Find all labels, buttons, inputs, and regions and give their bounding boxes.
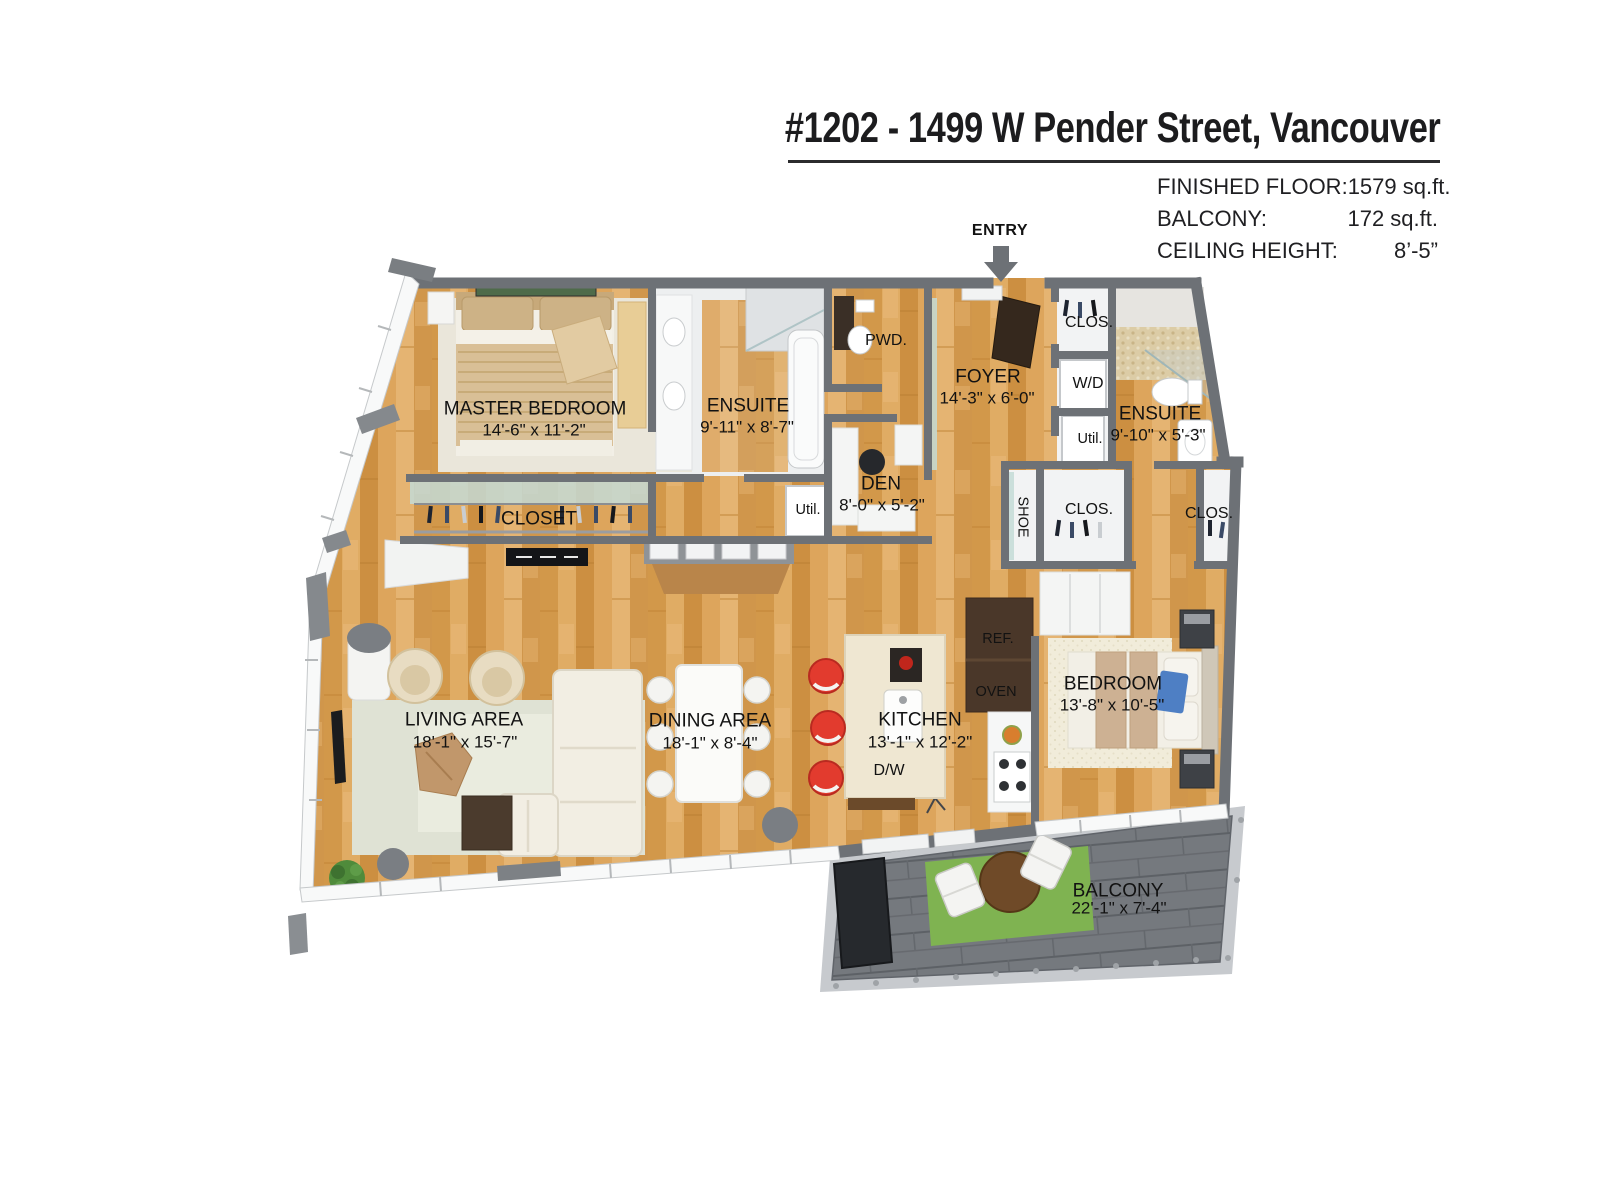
label-bedroom-dims: 13'-8" x 10'-5" [1060,697,1165,714]
stat-value: 8’-5” [1394,235,1438,267]
stat-label: BALCONY: [1157,203,1267,235]
label-living: LIVING AREA [405,711,523,730]
label-washer-dryer: W/D [1072,376,1103,392]
label-fridge: REF. [982,632,1013,647]
label-shoe-closet: SHOE [1015,496,1030,537]
label-bedroom: BEDROOM [1064,675,1162,694]
bathtub [788,330,824,468]
label-den: DEN [861,475,901,494]
master-dresser [428,292,454,324]
label-ensuite-second-dims: 9'-10" x 5'-3" [1110,427,1205,444]
floor-plan-page: #1202 - 1499 W Pender Street, Vancouver … [0,0,1600,1200]
fruit-bowl [1003,726,1021,744]
label-dining-dims: 18'-1" x 8'-4" [662,735,757,752]
headboard [1202,646,1218,754]
label-util-left: Util. [796,503,821,518]
label-foyer: FOYER [955,368,1020,387]
label-powder: PWD. [865,333,907,349]
title-underline [788,160,1440,163]
toilet [1152,378,1192,406]
label-ensuite-master-dims: 9'-11" x 8'-7" [700,419,794,436]
label-master-bedroom: MASTER BEDROOM [444,400,627,419]
ensuite-second-marble [1112,287,1204,327]
den-chair [859,449,885,475]
nightstand [1180,610,1214,648]
label-oven: OVEN [975,685,1016,700]
label-ensuite-second: ENSUITE [1119,405,1201,424]
label-ensuite-master: ENSUITE [707,397,789,416]
label-util-right: Util. [1078,432,1103,447]
label-living-dims: 18'-1" x 15'-7" [413,734,518,751]
bar-stools [809,659,845,795]
label-closet-right: CLOS. [1185,506,1233,522]
label-foyer-dims: 14'-3" x 6'-0" [939,390,1034,407]
label-closet-mid: CLOS. [1065,502,1113,518]
closet-glass [410,480,652,504]
entry-arrow-icon [984,246,1018,282]
label-kitchen-dims: 13'-1" x 12'-2" [868,734,973,751]
stat-finished-floor: FINISHED FLOOR: 1579 sq.ft. [1157,171,1438,203]
stat-label: FINISHED FLOOR: [1157,171,1348,203]
stove [994,752,1030,802]
label-hall-closet: CLOS. [1065,315,1113,331]
nightstand [1180,750,1214,788]
stat-balcony: BALCONY: 172 sq.ft. [1157,203,1438,235]
page-title: #1202 - 1499 W Pender Street, Vancouver [784,104,1440,153]
label-dishwasher: D/W [873,763,904,779]
label-dining: DINING AREA [649,712,771,731]
tub-chair [388,649,442,703]
stat-value: 1579 sq.ft. [1348,171,1451,203]
label-kitchen: KITCHEN [878,711,961,730]
stat-value: 172 sq.ft. [1347,203,1438,235]
stat-label: CEILING HEIGHT: [1157,235,1338,267]
label-master-closet: CLOSET [501,510,577,529]
side-table [462,796,512,850]
label-master-bedroom-dims: 14'-6" x 11'-2" [482,422,585,439]
stats-block: FINISHED FLOOR: 1579 sq.ft. BALCONY: 172… [1157,171,1438,267]
tub-chair [470,651,524,705]
stat-ceiling-height: CEILING HEIGHT: 8’-5” [1157,235,1438,267]
bedroom-wardrobe [1040,572,1130,635]
label-entry: ENTRY [972,223,1028,239]
balcony-bench [834,858,892,968]
ottoman [762,807,798,843]
label-den-dims: 8'-0" x 5'-2" [839,497,925,514]
label-balcony-dims: 22'-1" x 7'-4" [1071,900,1166,917]
ottoman [377,848,409,880]
